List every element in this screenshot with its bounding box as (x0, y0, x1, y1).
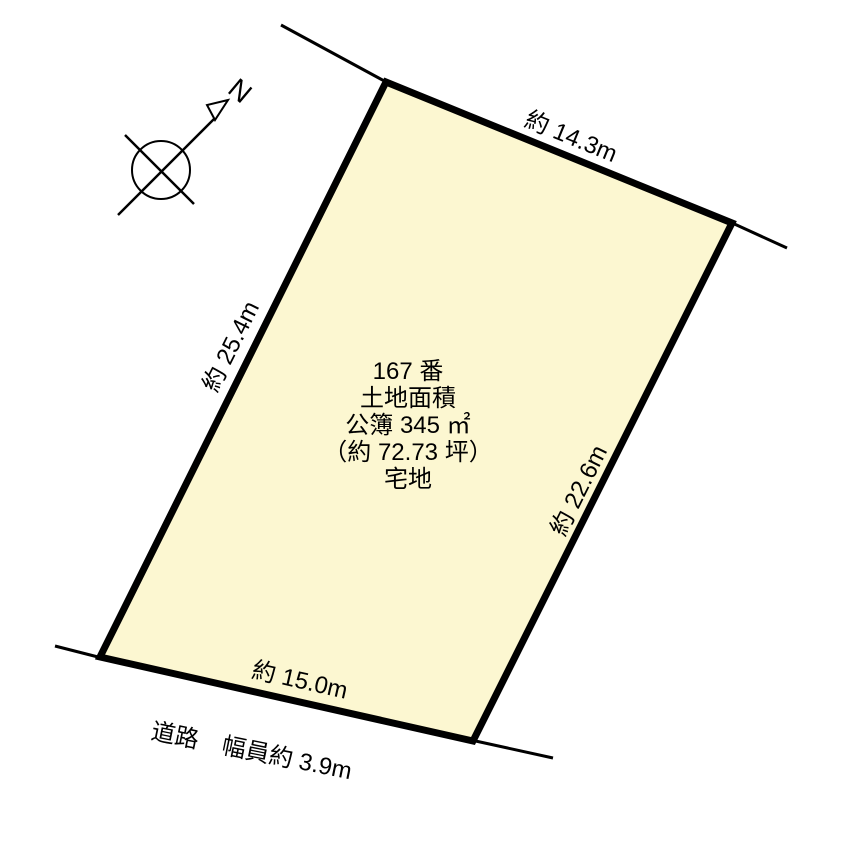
compass-cross-line (125, 135, 194, 204)
land-plot-diagram: N 約 14.3m 約 25.4m 約 22.6m 約 15.0m 167 番 … (0, 0, 860, 849)
road-edge-line-bottom-left (55, 646, 102, 658)
land-area-heading: 土地面積 (360, 385, 456, 412)
registered-area-value: 公簿 345 ㎡ (345, 412, 470, 439)
north-arrowhead-icon (207, 100, 228, 120)
parcel-number: 167 番 (373, 358, 444, 385)
area-in-tsubo-value: （約 72.73 坪） (323, 439, 492, 466)
diagram-canvas: N 約 14.3m 約 25.4m 約 22.6m 約 15.0m 167 番 … (0, 0, 860, 849)
north-compass: N (118, 72, 258, 215)
road-edge-line-bottom-right (471, 740, 553, 758)
land-category: 宅地 (384, 466, 432, 493)
north-label: N (222, 72, 257, 109)
road-label: 道路 幅員約 3.9m (149, 718, 354, 785)
boundary-extension-line-top-left (281, 25, 388, 83)
boundary-extension-line-top-right (730, 222, 787, 248)
